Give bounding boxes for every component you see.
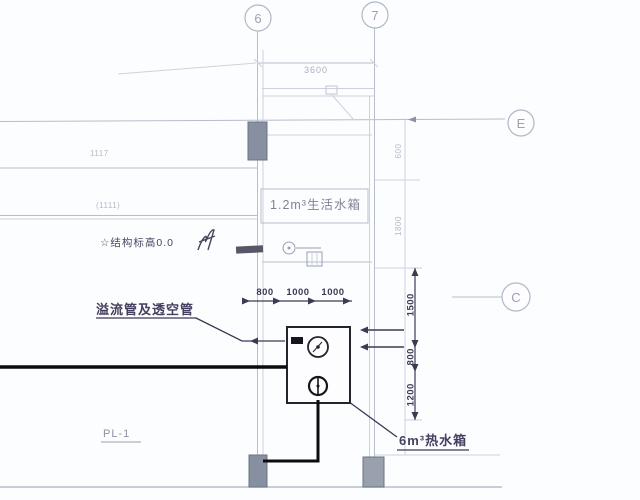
grid-bubble-label-c: C <box>503 291 529 304</box>
horizontal-dimension-chain <box>242 298 352 305</box>
dim-800-v: 800 <box>406 342 416 372</box>
grid-bubbles <box>245 2 534 311</box>
faint-note-2: (1111) <box>96 202 120 210</box>
leader-arrowhead <box>250 338 258 345</box>
drawing-linework <box>0 0 640 500</box>
elevation-note: ☆结构标高0.0 <box>100 238 174 249</box>
dim-1000-a: 1000 <box>283 288 313 298</box>
wall-hatch-mark <box>236 245 263 253</box>
grid-bubble-label-e: E <box>508 117 534 130</box>
dim-800: 800 <box>252 288 278 298</box>
dim-1000-b: 1000 <box>318 288 348 298</box>
faint-dim-1800: 1800 <box>395 211 403 241</box>
overflow-vent-pipe-label: 溢流管及透空管 <box>96 303 194 316</box>
living-water-tank-label: 1.2m³生活水箱 <box>263 199 368 212</box>
dim-1200: 1200 <box>406 380 416 410</box>
main-pipes <box>0 367 318 461</box>
structural-columns <box>248 122 384 487</box>
hot-water-tank-unit <box>287 327 350 403</box>
dimension-top-span: 3600 <box>296 66 336 75</box>
leader-arrow-e <box>408 117 416 123</box>
handwritten-check-mark <box>198 230 215 250</box>
cad-plumbing-detail-drawing: 6 7 E C 3600 1117 (1111) ☆结构标高0.0 1.2m³生… <box>0 0 640 500</box>
pipe-riser-label: PL-1 <box>103 429 130 440</box>
faint-dim-600: 600 <box>395 136 403 166</box>
grid-bubble-label-7: 7 <box>362 9 388 22</box>
flow-arrows <box>360 327 404 351</box>
faint-note-1: 1117 <box>90 150 109 158</box>
dim-1500: 1500 <box>406 290 416 320</box>
grid-bubble-label-6: 6 <box>245 12 271 25</box>
hot-water-tank-label: 6m³热水箱 <box>399 434 467 447</box>
secondary-light-lines <box>0 50 500 487</box>
grid-lines <box>0 28 505 487</box>
valve-symbol <box>326 86 337 94</box>
